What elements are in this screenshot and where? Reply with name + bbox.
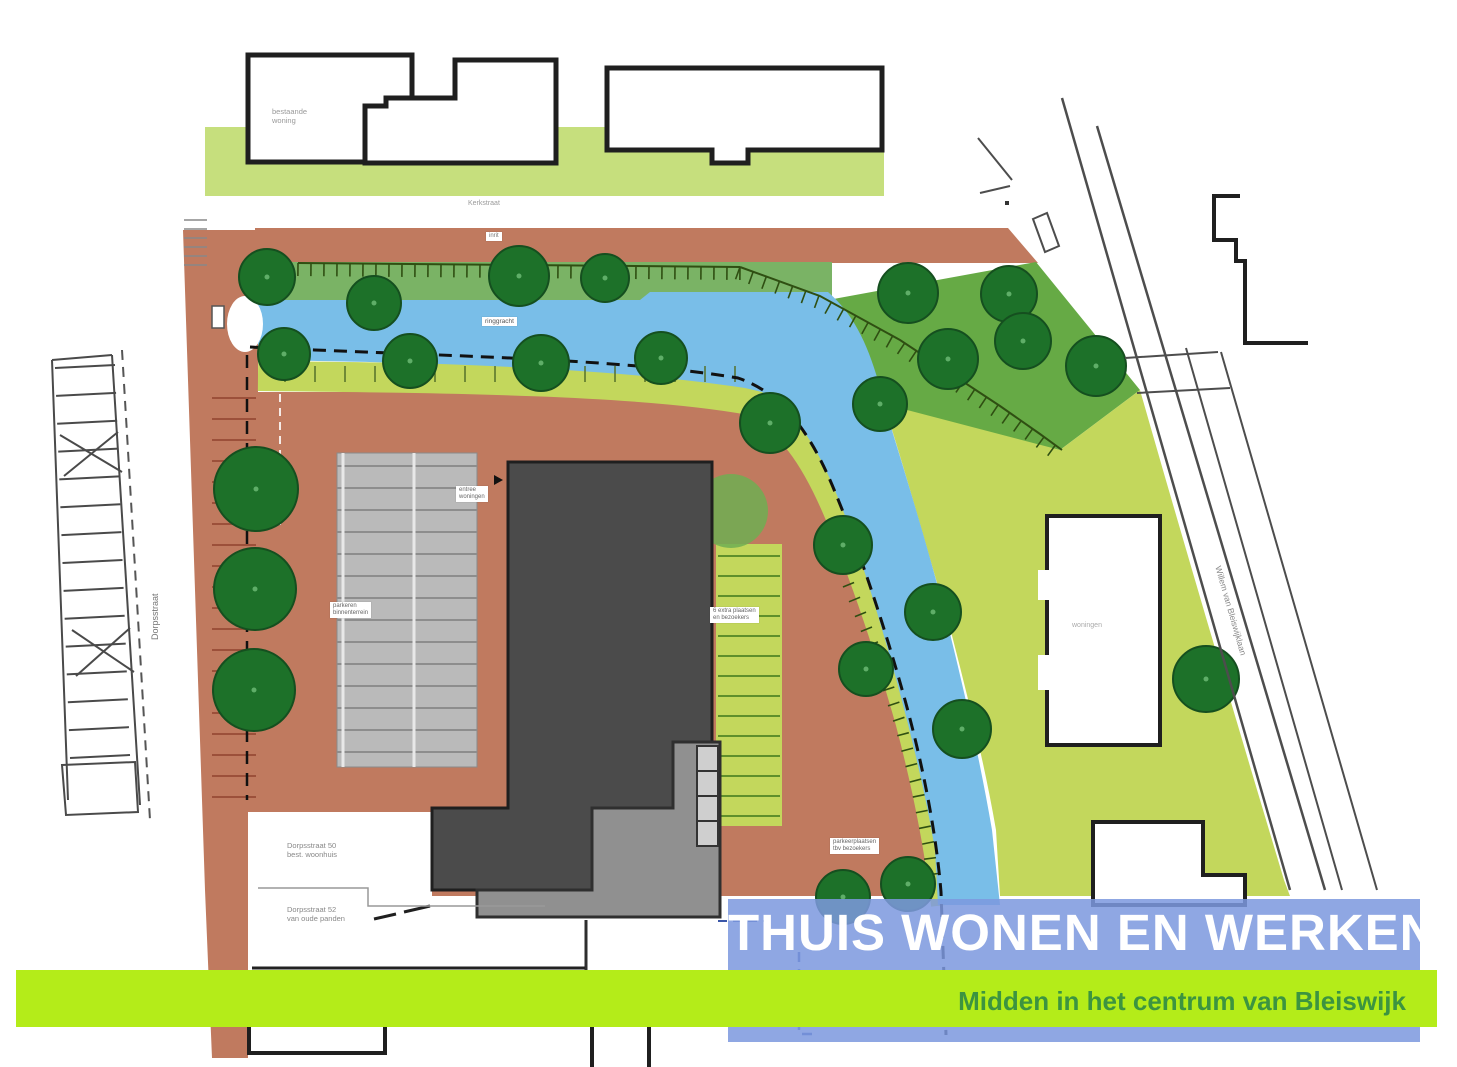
tree <box>239 249 295 305</box>
tree <box>1066 336 1126 396</box>
tree <box>839 642 893 696</box>
building-south-2 <box>592 1025 649 1067</box>
entrance-arrow-icon <box>494 475 503 485</box>
crosswalk-mark <box>1033 213 1059 252</box>
tree <box>933 700 991 758</box>
tree <box>581 254 629 302</box>
site-plan-page: bestaande woningKerkstraatinritringgrach… <box>0 0 1457 1067</box>
column-door-mark <box>212 306 224 328</box>
parking-strip-east <box>716 544 782 826</box>
banner-title: THUIS WONEN EN WERKEN <box>728 903 1420 962</box>
tree <box>905 584 961 640</box>
tree <box>740 393 800 453</box>
parking-lot <box>337 453 477 767</box>
tree <box>918 329 978 389</box>
tree <box>489 246 549 306</box>
banner-subtitle: Midden in het centrum van Bleiswijk <box>728 986 1406 1017</box>
tree <box>347 276 401 330</box>
tree <box>258 328 310 380</box>
x-stalls <box>60 432 134 676</box>
tree <box>995 313 1051 369</box>
building-east <box>1047 516 1160 745</box>
tree <box>513 335 569 391</box>
street-parking-west <box>52 350 150 820</box>
sketch-dashes <box>374 906 430 919</box>
tree <box>214 548 296 630</box>
tree <box>814 516 872 574</box>
building-northeast-outline <box>1214 196 1308 343</box>
tree <box>383 334 437 388</box>
tree <box>214 447 298 531</box>
tree <box>853 377 907 431</box>
tree <box>635 332 687 384</box>
tree <box>213 649 295 731</box>
tree <box>878 263 938 323</box>
building-north-3 <box>607 68 882 163</box>
